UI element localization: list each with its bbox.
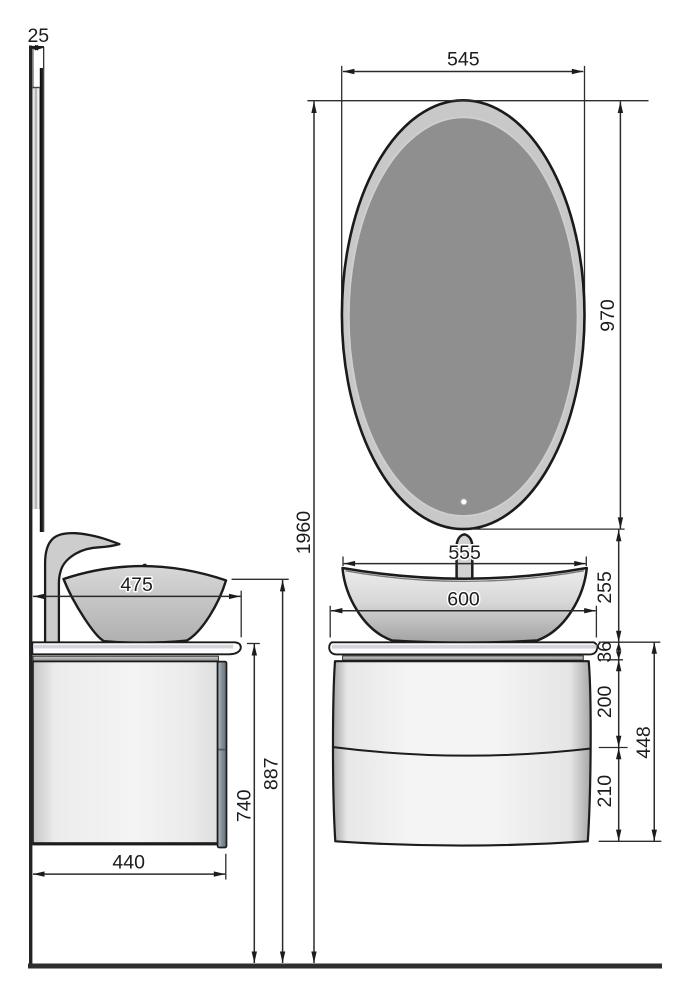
svg-text:448: 448 (633, 726, 655, 759)
svg-text:970: 970 (597, 299, 619, 332)
svg-text:200: 200 (594, 685, 616, 718)
svg-text:36: 36 (594, 641, 616, 663)
svg-text:600: 600 (447, 589, 480, 611)
svg-text:1960: 1960 (293, 511, 315, 555)
svg-text:740: 740 (234, 789, 256, 822)
svg-text:210: 210 (594, 775, 616, 808)
svg-text:545: 545 (447, 49, 480, 71)
svg-text:25: 25 (27, 25, 49, 47)
svg-text:475: 475 (120, 574, 153, 596)
svg-text:555: 555 (448, 542, 481, 564)
svg-text:887: 887 (261, 758, 283, 791)
svg-text:255: 255 (594, 571, 616, 604)
svg-text:440: 440 (112, 851, 145, 873)
